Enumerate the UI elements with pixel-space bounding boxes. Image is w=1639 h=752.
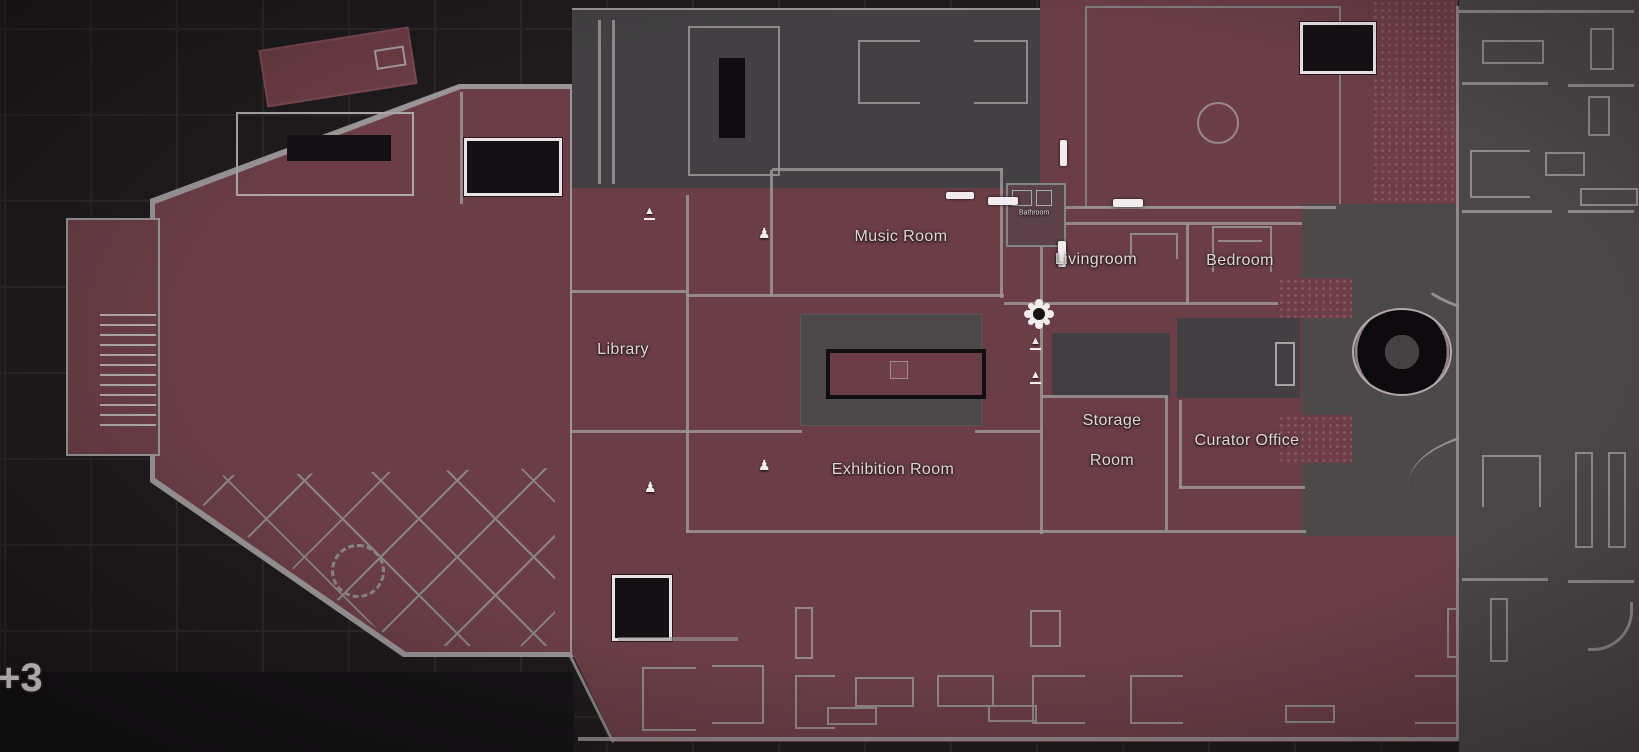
garden-hedge: [1590, 28, 1614, 70]
statue-icon: ♟: [758, 226, 771, 240]
player-position-marker: [1033, 308, 1045, 320]
statue-icon: ♟: [644, 480, 657, 494]
wall: [1004, 302, 1302, 305]
room-label-bathroom: Bathroom: [1019, 210, 1049, 217]
garden-hedge: [1608, 452, 1626, 548]
terrace-stairs: [100, 314, 156, 432]
wall: [1042, 395, 1168, 398]
wall: [572, 430, 686, 433]
round-table-outline: [1197, 102, 1239, 144]
garden-hedge: [1545, 152, 1585, 176]
vehicle: [258, 26, 417, 107]
garden-wall: [1462, 82, 1548, 85]
wall: [686, 195, 689, 532]
exhibit-stand: [1032, 675, 1085, 724]
garden-wall: [1568, 580, 1634, 583]
room-label-curator-office: Curator Office: [1195, 432, 1300, 450]
garden-wall: [1568, 84, 1634, 87]
wall: [1179, 400, 1182, 488]
bed-pillow-line: [1218, 240, 1262, 242]
dining-table: [719, 58, 745, 138]
garden-hedge: [1482, 455, 1541, 507]
room-label-storage-line2: Room: [1090, 452, 1134, 470]
exhibit-stand: [937, 675, 994, 707]
sofa-outline: [1130, 233, 1178, 259]
fountain: [1352, 308, 1452, 396]
vehicle-window: [374, 45, 407, 69]
statue-icon: ♟: [758, 458, 771, 472]
elevator-box-bottom: [612, 575, 672, 641]
wall: [572, 290, 686, 293]
room-label-bedroom: Bedroom: [1206, 252, 1274, 270]
shelf-line: [618, 637, 738, 641]
wall: [1186, 224, 1189, 304]
bottom-right-red-floor: [1040, 534, 1458, 742]
wall: [612, 20, 615, 184]
garden-hedge: [1482, 40, 1544, 64]
wall: [686, 294, 1004, 297]
storage-top-gray-patch: [1052, 333, 1170, 397]
exhibit-stand: [642, 667, 696, 731]
garden-wall: [1462, 578, 1548, 581]
stairs-up-icon: ▲: [1030, 370, 1041, 384]
floor-indicator: +3: [0, 656, 43, 701]
map-viewport: ▲ ▲ ▲ ♟ ♟ ♟ Music Room Bathroom Livingro…: [0, 0, 1639, 752]
garden-wall: [1568, 210, 1634, 213]
door-marker: [988, 197, 1018, 205]
door-marker: [1113, 199, 1143, 207]
wall: [1165, 397, 1168, 530]
garden-hedge: [1588, 96, 1610, 136]
garden-hedge: [1490, 598, 1508, 662]
exhibit-stand: [827, 707, 877, 725]
stairs-up-icon: ▲: [644, 206, 655, 220]
display-case-item: [890, 361, 908, 379]
wall: [1000, 168, 1003, 298]
room-label-storage-line1: Storage: [1083, 412, 1142, 430]
room-label-library: Library: [597, 341, 649, 359]
wall: [686, 530, 1306, 533]
garden-wall: [1459, 10, 1634, 13]
room-label-music-room: Music Room: [855, 228, 948, 246]
room-label-livingroom: Livingroom: [1055, 251, 1137, 269]
elevator-box-top-right: [1300, 22, 1376, 74]
elevator-box-left: [464, 138, 562, 196]
exhibit-stand: [855, 677, 914, 707]
bottom-dark-strip: [0, 672, 574, 752]
exhibit-stand: [1285, 705, 1335, 723]
wall: [1186, 222, 1302, 225]
seat-bench-left: [858, 40, 920, 104]
door-marker: [1060, 140, 1067, 166]
wall: [598, 20, 601, 184]
wall: [686, 430, 802, 433]
bench-outline: [1275, 342, 1295, 386]
exhibit-stand: [1030, 610, 1061, 647]
wall: [1179, 486, 1305, 489]
garden-wall: [1462, 210, 1552, 213]
exhibit-stand: [988, 705, 1037, 722]
wall: [1062, 222, 1186, 225]
exhibit-stand: [1130, 675, 1183, 724]
exhibit-stand: [712, 665, 764, 724]
dotted-courtyard-patch: [1372, 0, 1458, 212]
exhibit-stand: [795, 607, 813, 659]
garden-hedge: [1575, 452, 1593, 548]
garden-hedge: [1580, 188, 1638, 206]
garden-hedge: [1470, 150, 1530, 198]
flowerbed: [1278, 278, 1352, 318]
wall: [1040, 206, 1336, 209]
stairs-up-icon: ▲: [1030, 336, 1041, 350]
top-gray-block: [572, 8, 1040, 194]
wall: [772, 168, 1002, 171]
wall: [460, 92, 463, 204]
hall-table-top: [287, 135, 391, 161]
garden-rosette: [331, 544, 385, 598]
seat-bench-right: [974, 40, 1028, 104]
door-marker: [946, 192, 974, 199]
bathroom-fixture: [1036, 190, 1052, 206]
wall: [975, 430, 1042, 433]
room-label-exhibition-room: Exhibition Room: [832, 461, 955, 479]
